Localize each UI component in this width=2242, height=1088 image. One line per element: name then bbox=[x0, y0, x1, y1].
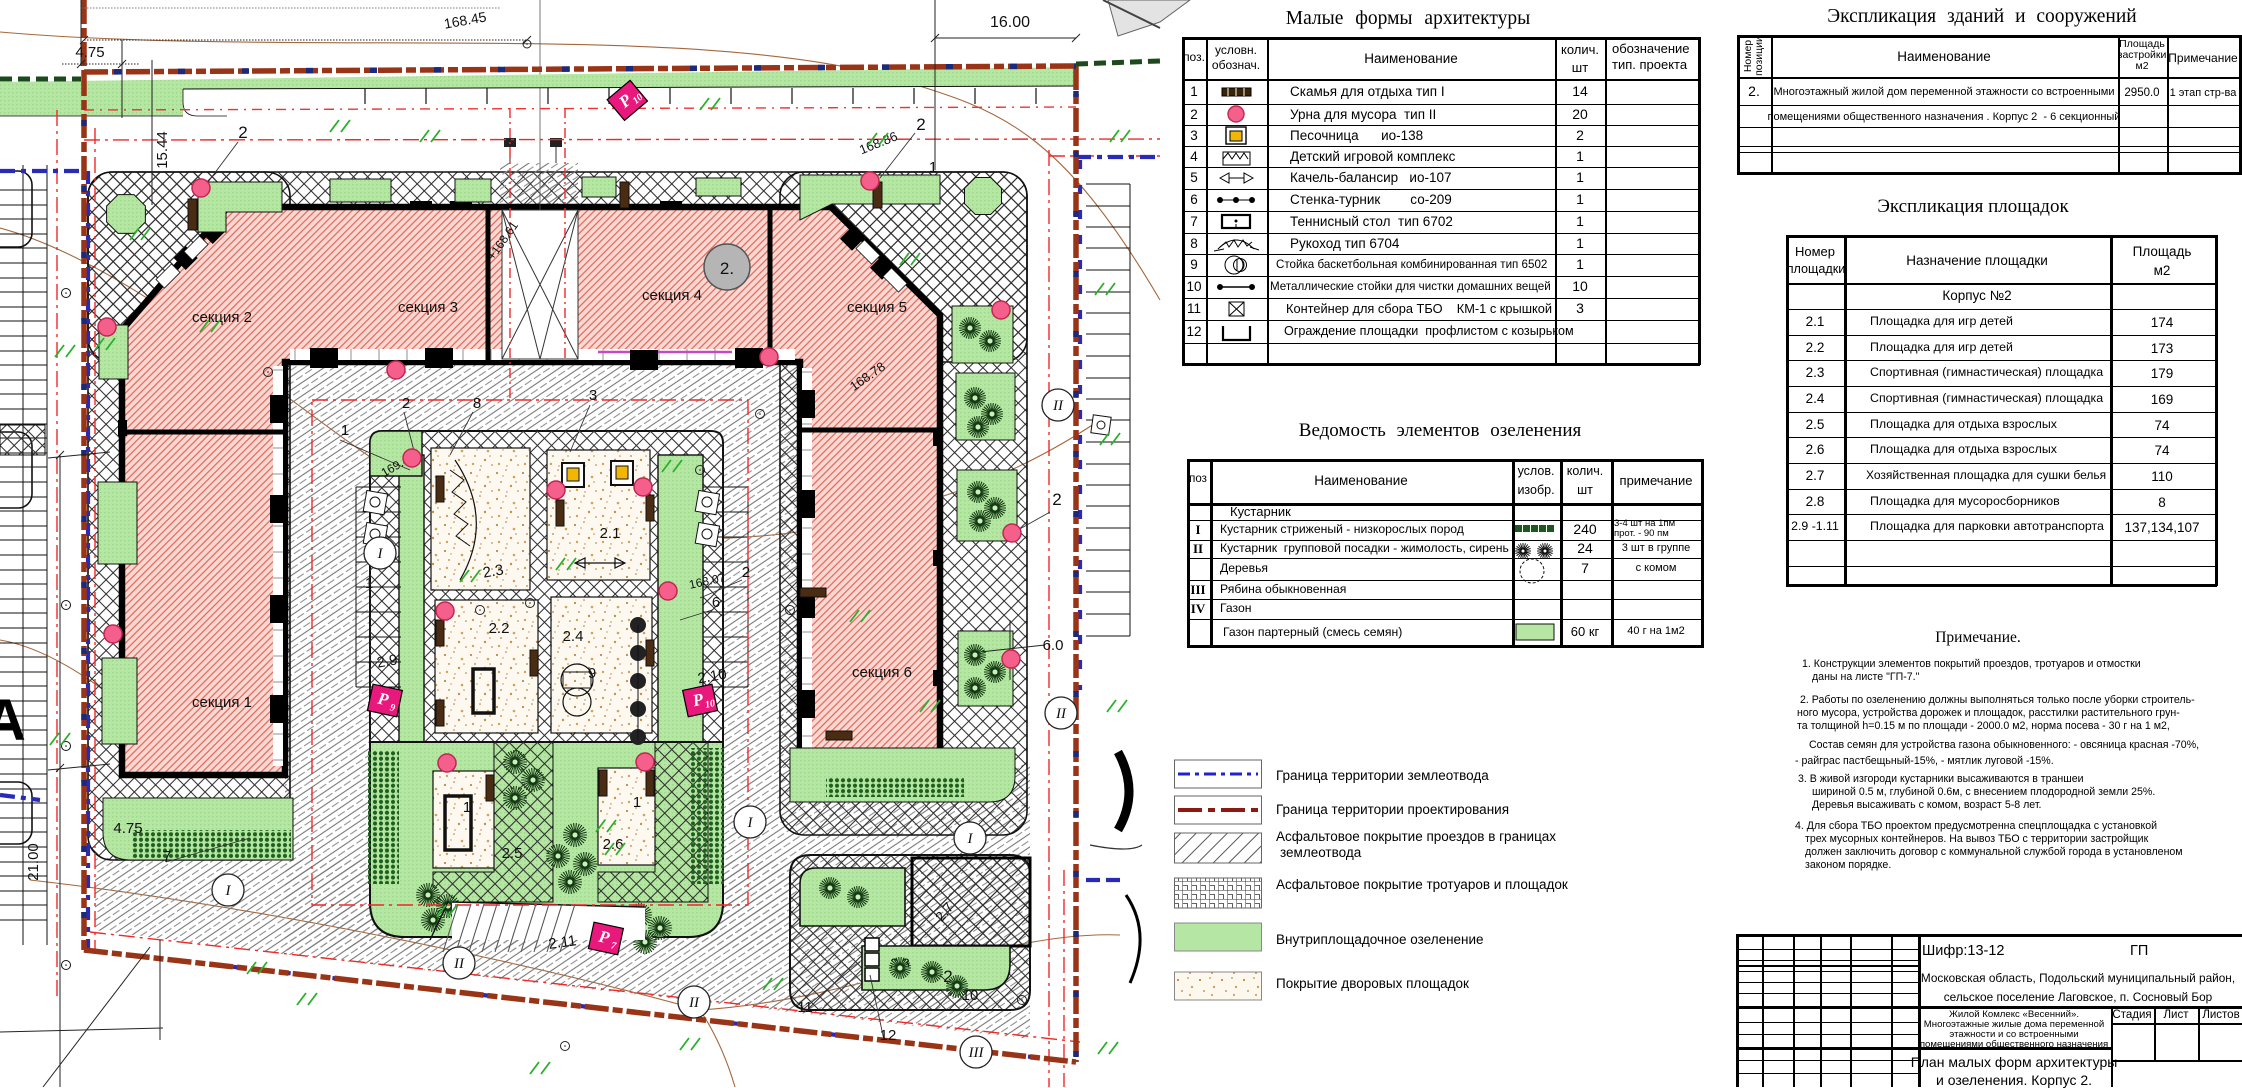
svg-text:секция 5: секция 5 bbox=[847, 299, 907, 316]
svg-text:21.00: 21.00 bbox=[25, 843, 42, 881]
svg-text:1: 1 bbox=[341, 422, 349, 439]
svg-text:9: 9 bbox=[588, 665, 596, 682]
svg-text:секция 6: секция 6 bbox=[852, 664, 912, 681]
svg-text:2.3: 2.3 bbox=[481, 561, 504, 581]
svg-text:12: 12 bbox=[880, 1027, 897, 1044]
svg-text:1: 1 bbox=[633, 794, 641, 811]
svg-text:2.4: 2.4 bbox=[563, 628, 584, 645]
svg-text:11: 11 bbox=[797, 999, 813, 1016]
svg-text:2.1: 2.1 bbox=[600, 525, 621, 542]
svg-text:2.5: 2.5 bbox=[502, 845, 523, 862]
svg-text:16.00: 16.00 bbox=[990, 14, 1030, 31]
svg-text:1: 1 bbox=[365, 575, 373, 592]
svg-text:секция 4: секция 4 bbox=[642, 287, 702, 304]
svg-text:2.2: 2.2 bbox=[489, 620, 510, 637]
svg-text:1: 1 bbox=[929, 159, 937, 176]
svg-text:15.44: 15.44 bbox=[154, 131, 171, 169]
svg-text:A: A bbox=[0, 688, 26, 753]
svg-text:I: I bbox=[225, 883, 232, 899]
svg-text:III: III bbox=[968, 1045, 985, 1061]
svg-text:7: 7 bbox=[163, 849, 172, 866]
svg-text:секция 3: секция 3 bbox=[398, 299, 458, 316]
svg-text:II: II bbox=[1052, 398, 1064, 414]
svg-text:3: 3 bbox=[589, 387, 597, 404]
svg-text:2: 2 bbox=[742, 564, 750, 581]
svg-text:4.75: 4.75 bbox=[113, 820, 142, 837]
svg-text:6.0: 6.0 bbox=[1043, 637, 1064, 654]
svg-text:I: I bbox=[377, 546, 384, 562]
svg-text:II: II bbox=[688, 995, 700, 1011]
svg-text:секция 2: секция 2 bbox=[192, 309, 252, 326]
svg-text:2.: 2. bbox=[720, 259, 734, 278]
svg-text:1: 1 bbox=[463, 799, 471, 816]
svg-text:секция 1: секция 1 bbox=[192, 694, 252, 711]
svg-text:2: 2 bbox=[916, 115, 925, 134]
svg-text:6: 6 bbox=[712, 594, 720, 611]
svg-text:II: II bbox=[453, 956, 465, 972]
svg-text:2.9: 2.9 bbox=[375, 651, 398, 671]
svg-text:8: 8 bbox=[473, 395, 481, 412]
svg-text:2: 2 bbox=[402, 395, 410, 412]
svg-text:4.75: 4.75 bbox=[75, 44, 104, 61]
svg-text:II: II bbox=[1055, 706, 1067, 722]
svg-text:2: 2 bbox=[238, 123, 247, 142]
svg-text:I: I bbox=[967, 831, 974, 847]
svg-text:2: 2 bbox=[1052, 490, 1061, 509]
svg-text:I: I bbox=[747, 815, 754, 831]
